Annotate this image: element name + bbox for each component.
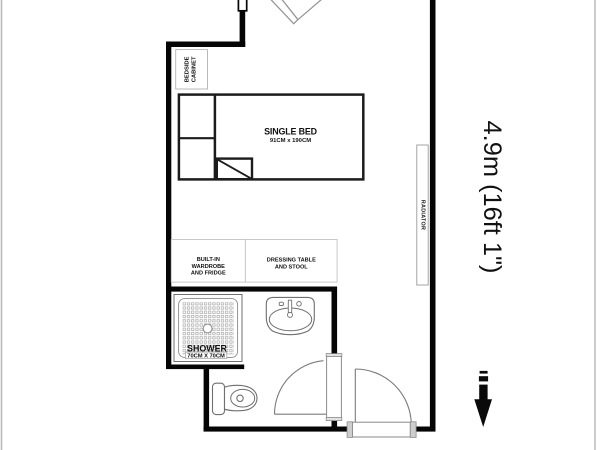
svg-text:BUILT-IN: BUILT-IN	[197, 257, 220, 263]
svg-text:4.9m (16ft 1"): 4.9m (16ft 1")	[478, 121, 506, 274]
svg-text:AND FRIDGE: AND FRIDGE	[191, 271, 226, 277]
svg-text:AND STOOL: AND STOOL	[275, 264, 308, 270]
svg-text:RADIATOR: RADIATOR	[419, 200, 425, 230]
svg-text:CABINET: CABINET	[192, 56, 198, 82]
svg-text:91CM x 190CM: 91CM x 190CM	[270, 138, 311, 144]
svg-text:70CM X 70CM: 70CM X 70CM	[187, 353, 225, 359]
svg-text:BEDSIDE: BEDSIDE	[185, 56, 191, 82]
svg-text:SINGLE BED: SINGLE BED	[264, 127, 317, 137]
svg-text:WARDROBE: WARDROBE	[192, 264, 226, 270]
svg-text:DRESSING TABLE: DRESSING TABLE	[267, 258, 316, 264]
